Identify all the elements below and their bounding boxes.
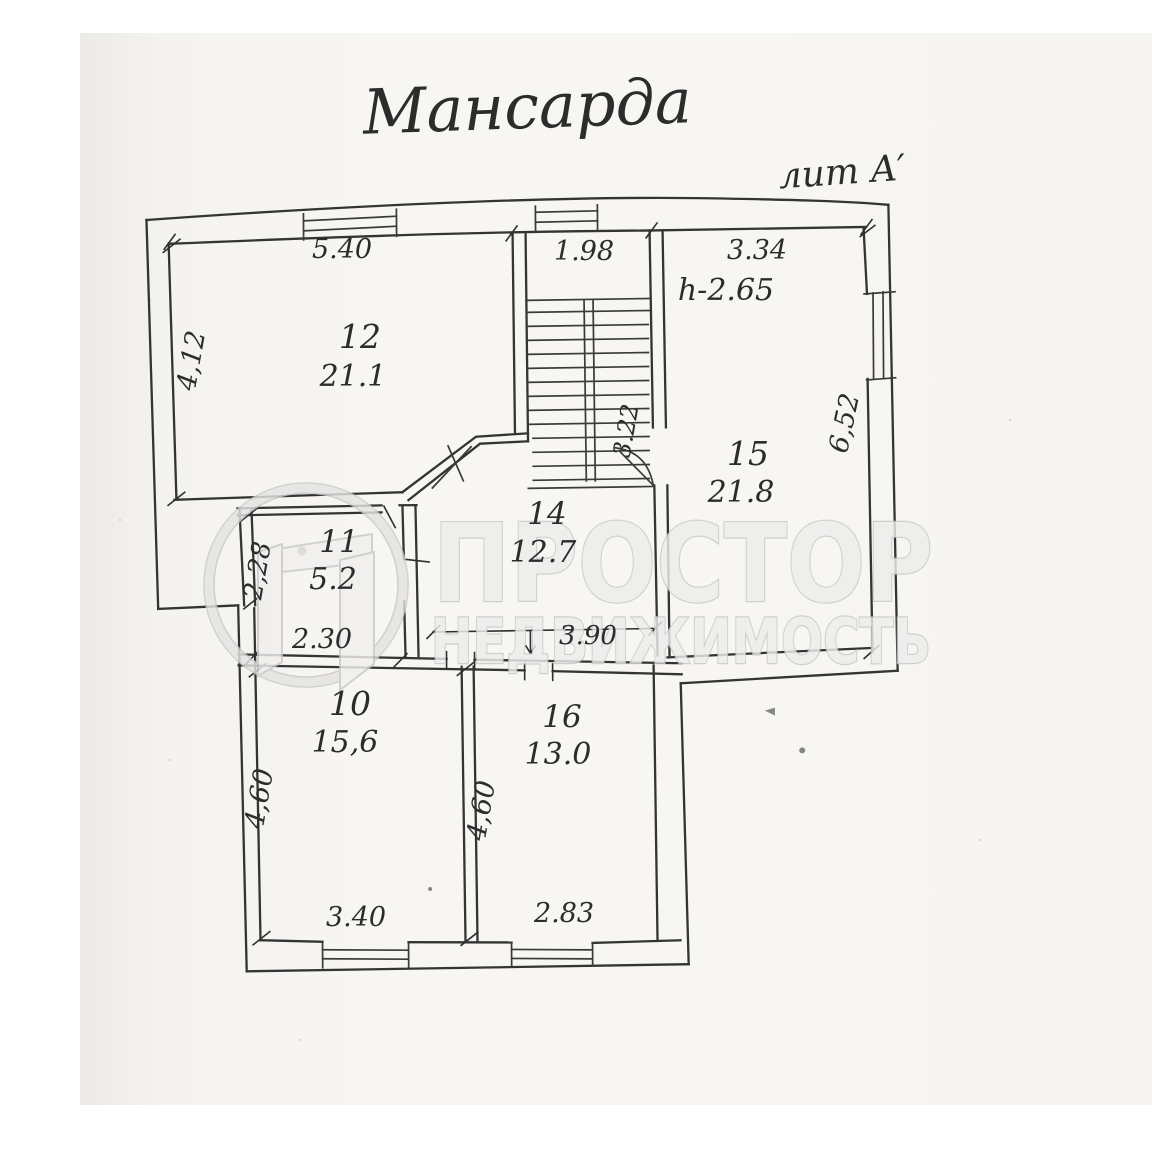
- room10-area: 15,6: [312, 725, 379, 760]
- room14-area: 12.7: [510, 535, 578, 570]
- room11-area: 5.2: [309, 562, 357, 597]
- room14-number: 14: [527, 496, 566, 532]
- room12-number: 12: [339, 317, 381, 356]
- dim-room11-width: 2.30: [291, 624, 352, 655]
- watermark-brand-line2: НЕДВИЖИМОСТЬ: [431, 605, 931, 678]
- scanned-floor-plan-page: ПРОСТОР НЕДВИЖИМОСТЬ Мансарда лит А′ 5.4…: [0, 0, 1152, 1163]
- dim-room10-width: 3.40: [326, 902, 386, 933]
- room16-number: 16: [542, 699, 581, 735]
- dim-corridor-width: 1.98: [554, 236, 614, 267]
- dim-room12-width: 5.40: [312, 234, 372, 265]
- dim-room15-width: 3.34: [727, 235, 787, 266]
- dim-room16-width: 2.83: [533, 898, 594, 929]
- room15-area: 21.8: [707, 475, 775, 510]
- room10-number: 10: [329, 684, 371, 723]
- room16-area: 13.0: [525, 737, 592, 772]
- room11-number: 11: [319, 524, 358, 560]
- dim-hall-width: 3.90: [559, 621, 617, 651]
- logo-dot: [298, 547, 307, 556]
- page-title: Мансарда: [361, 64, 693, 148]
- room12-area: 21.1: [319, 359, 387, 394]
- floor-plan-canvas: ПРОСТОР НЕДВИЖИМОСТЬ Мансарда лит А′ 5.4…: [0, 0, 1152, 1163]
- room15-number: 15: [727, 434, 769, 473]
- ceiling-height-note: h-2.65: [678, 273, 774, 308]
